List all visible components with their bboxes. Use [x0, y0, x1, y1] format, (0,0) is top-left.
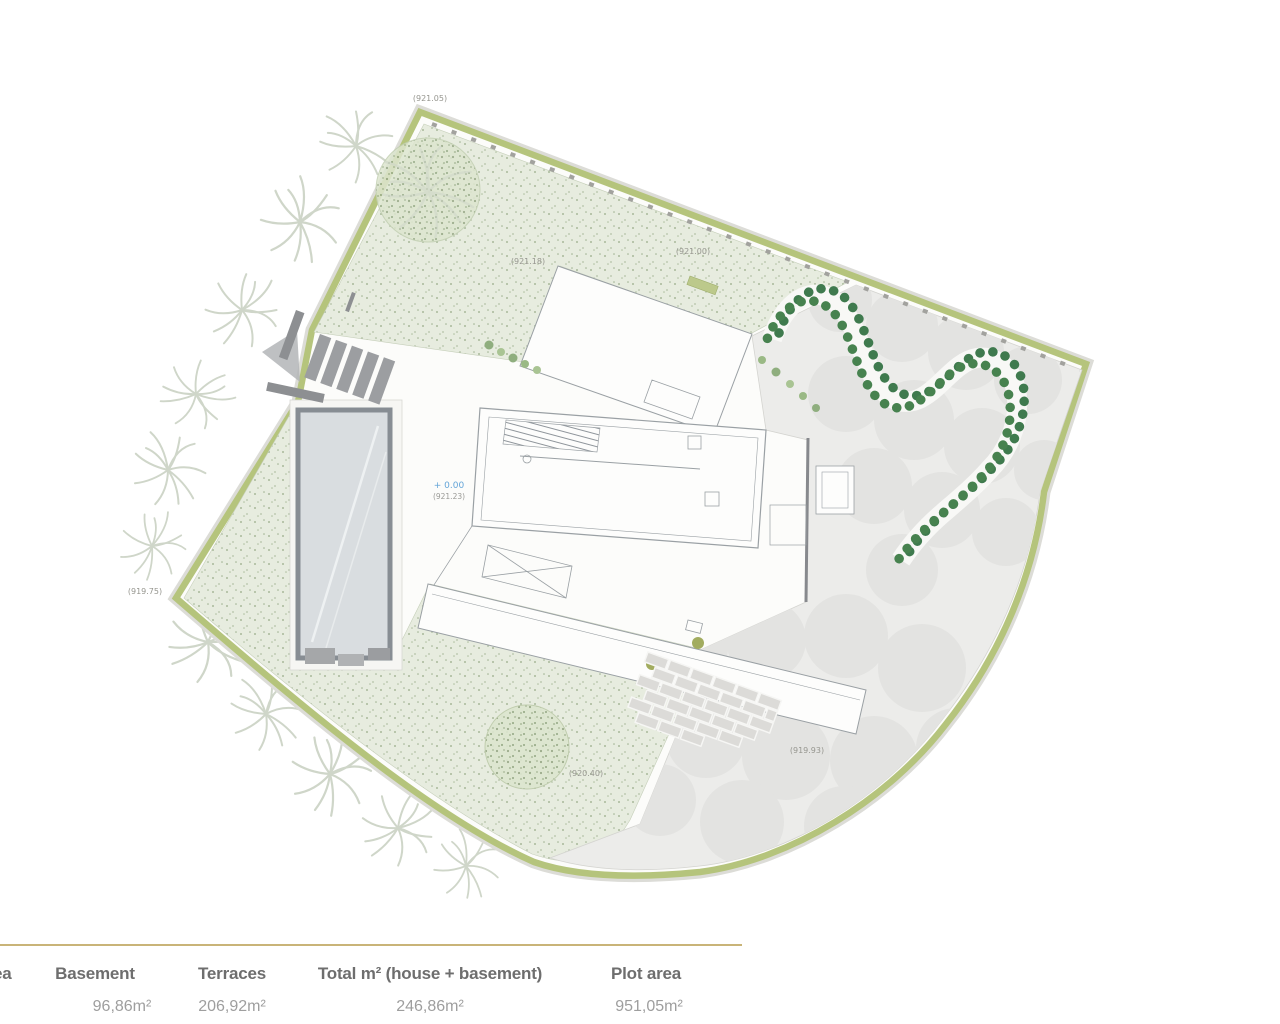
level-marker-elevation: (921.23) — [433, 492, 465, 501]
elevation-label: (919.75) — [128, 587, 162, 596]
elevation-label: (921.18) — [511, 257, 545, 266]
column-header-partial: ea — [0, 964, 12, 984]
elevation-label: (919.93) — [790, 746, 824, 755]
value-total: 246,86m² — [299, 998, 561, 1016]
elevation-label: (921.05) — [413, 94, 447, 103]
value-basement: 96,86m² — [66, 998, 178, 1016]
summary-table: ea Basement Terraces Total m² (house + b… — [0, 944, 780, 1024]
column-header-total: Total m² (house + basement) — [299, 964, 561, 984]
skylight — [705, 492, 719, 506]
site-plan: (921.05) (921.18) (921.00) (919.75) (920… — [0, 0, 1280, 950]
elevation-label: (920.40) — [569, 769, 603, 778]
pool-terrace — [290, 400, 402, 670]
pool-step — [368, 648, 390, 660]
level-marker-value: + 0.00 — [434, 481, 465, 491]
column-header-basement: Basement — [39, 964, 151, 984]
column-header-terraces: Terraces — [177, 964, 287, 984]
pool-step — [338, 654, 364, 666]
value-plot-area: 951,05m² — [590, 998, 708, 1016]
skylight — [688, 436, 701, 449]
summary-divider — [0, 944, 742, 946]
garden-round-bed — [485, 705, 569, 789]
value-terraces: 206,92m² — [177, 998, 287, 1016]
pool-step — [305, 648, 335, 664]
site-plan-figure: (921.05) (921.18) (921.00) (919.75) (920… — [0, 0, 1280, 950]
column-header-plot-area: Plot area — [587, 964, 705, 984]
elevation-label: (921.00) — [676, 247, 710, 256]
